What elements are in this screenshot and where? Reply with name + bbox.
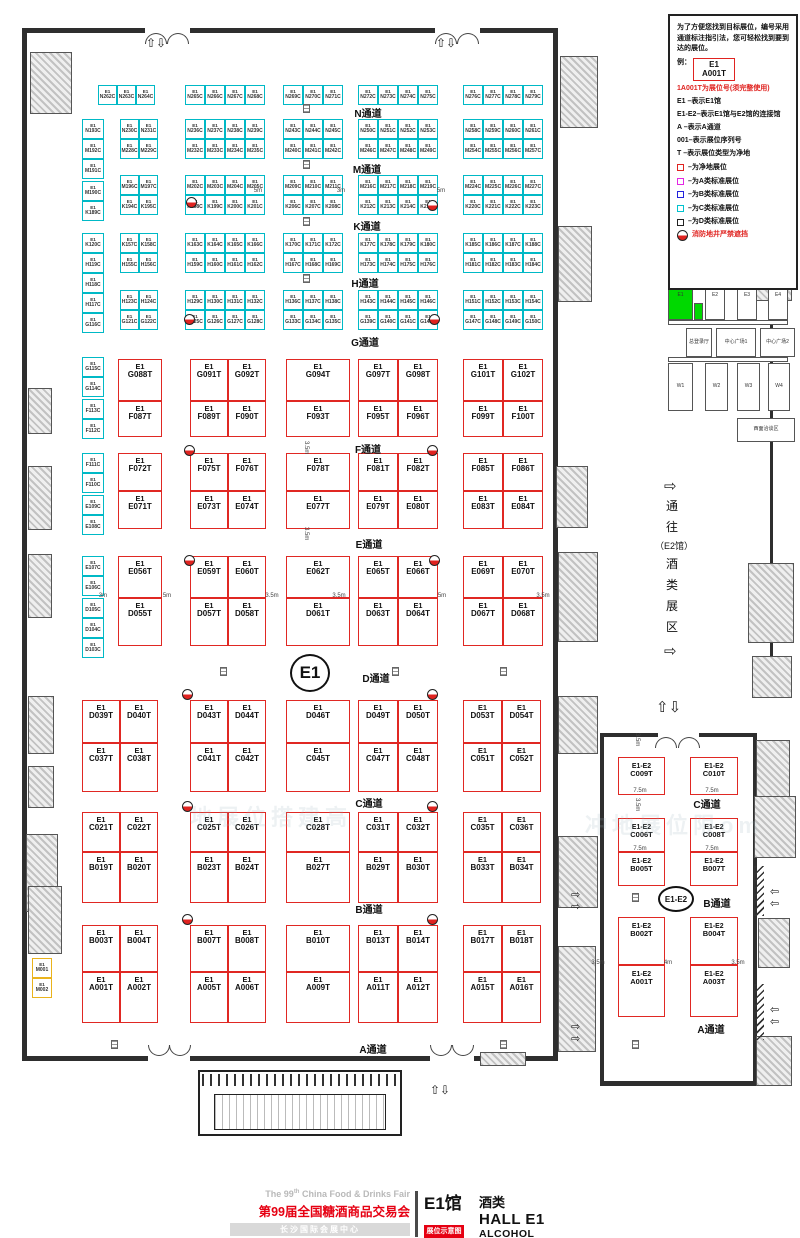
booth-M226C[interactable]: E1M226C [503, 175, 523, 195]
booth-D039T[interactable]: E1D039T [82, 700, 120, 743]
booth-H174C[interactable]: E1H174C [378, 253, 398, 273]
escalator-icon [303, 104, 310, 113]
booth-K120C[interactable]: E1K120C [82, 233, 104, 253]
booth-N278C[interactable]: E1N278C [503, 85, 523, 105]
booth-A012T[interactable]: E1A012T [398, 972, 438, 1023]
booth-B008T[interactable]: E1B008T [228, 925, 266, 972]
booth-M203C[interactable]: E1M203C [205, 175, 225, 195]
booth-H168C[interactable]: E1H168C [303, 253, 323, 273]
booth-M241C[interactable]: E1M241C [303, 139, 323, 159]
booth-K220C[interactable]: E1K220C [463, 195, 483, 215]
booth-N261C[interactable]: E1N261C [523, 119, 543, 139]
booth-E108C[interactable]: E1E108C [82, 515, 104, 535]
booth-N231C[interactable]: E1N231C [139, 119, 158, 139]
booth-G094T[interactable]: E1G094T [286, 359, 350, 401]
booth-code: H129C [187, 300, 203, 306]
booth-H156C[interactable]: E1H156C [139, 253, 158, 273]
booth-B014T[interactable]: E1B014T [398, 925, 438, 972]
booth-A016T[interactable]: E1A016T [502, 972, 541, 1023]
booth-D103C[interactable]: E1D103C [82, 638, 104, 658]
booth-F072T[interactable]: E1F072T [118, 453, 162, 491]
booth-C045T[interactable]: E1C045T [286, 743, 350, 792]
booth-D061T[interactable]: E1D061T [286, 598, 350, 646]
booth-E074T[interactable]: E1E074T [228, 491, 266, 529]
booth-C022T[interactable]: E1C022T [120, 812, 158, 852]
booth-C035T[interactable]: E1C035T [463, 812, 502, 852]
booth-E073T[interactable]: E1E073T [190, 491, 228, 529]
booth-H145C[interactable]: E1H145C [398, 290, 418, 310]
booth-A005T[interactable]: E1A005T [190, 972, 228, 1023]
booth-C032T[interactable]: E1C032T [398, 812, 438, 852]
booth-G102T[interactable]: E1G102T [503, 359, 543, 401]
booth-H123C[interactable]: E1H123C [120, 290, 139, 310]
booth-G141C[interactable]: E1G141C [398, 310, 418, 330]
booth-D064T[interactable]: E1D064T [398, 598, 438, 646]
dimension-label: 7.5m [705, 788, 718, 794]
booth-N263C[interactable]: E1N263C [117, 85, 136, 105]
booth-M254C[interactable]: E1M254C [463, 139, 483, 159]
booth-H146C[interactable]: E1H146C [418, 290, 438, 310]
booth-A006T[interactable]: E1A006T [228, 972, 266, 1023]
booth-code: N274C [400, 95, 416, 101]
booth-E109C[interactable]: E1E109C [82, 495, 104, 515]
booth-M210C[interactable]: E1M210C [303, 175, 323, 195]
booth-K163C[interactable]: E1K163C [185, 233, 205, 253]
booth-E083T[interactable]: E1E083T [463, 491, 503, 529]
booth-H162C[interactable]: E1H162C [245, 253, 265, 273]
booth-H132C[interactable]: E1H132C [245, 290, 265, 310]
booth-D046T[interactable]: E1D046T [286, 700, 350, 743]
booth-C047T[interactable]: E1C047T [358, 743, 398, 792]
booth-D054T[interactable]: E1D054T [502, 700, 541, 743]
booth-H159C[interactable]: E1H159C [185, 253, 205, 273]
booth-N251C[interactable]: E1N251C [378, 119, 398, 139]
booth-A001T[interactable]: E1A001T [82, 972, 120, 1023]
booth-N270C[interactable]: E1N270C [303, 85, 323, 105]
booth-K157C[interactable]: E1K157C [120, 233, 139, 253]
booth-F087T[interactable]: E1F087T [118, 401, 162, 437]
booth-F086T[interactable]: E1F086T [503, 453, 543, 491]
booth-N267C[interactable]: E1N267C [225, 85, 245, 105]
booth-code: M229C [140, 149, 156, 155]
booth-H182C[interactable]: E1H182C [483, 253, 503, 273]
booth-M224C[interactable]: E1M224C [463, 175, 483, 195]
booth-F085T[interactable]: E1F085T [463, 453, 503, 491]
booth-M246C[interactable]: E1M246C [358, 139, 378, 159]
booth-B024T[interactable]: E1B024T [228, 852, 266, 903]
booth-N230C[interactable]: E1N230C [120, 119, 139, 139]
booth-G140C[interactable]: E1G140C [378, 310, 398, 330]
booth-D044T[interactable]: E1D044T [228, 700, 266, 743]
booth-A002T[interactable]: E1A002T [120, 972, 158, 1023]
booth-K200C[interactable]: E1K200C [225, 195, 245, 215]
booth-K188C[interactable]: E1K188C [523, 233, 543, 253]
booth-M190C[interactable]: E1M190C [82, 181, 104, 201]
booth-K164C[interactable]: E1K164C [205, 233, 225, 253]
booth-H151C[interactable]: E1H151C [463, 290, 483, 310]
booth-M234C[interactable]: E1M234C [225, 139, 245, 159]
booth-G091T[interactable]: E1G091T [190, 359, 228, 401]
booth-H160C[interactable]: E1H160C [205, 253, 225, 273]
booth-H129C[interactable]: E1H129C [185, 290, 205, 310]
booth-D049T[interactable]: E1D049T [358, 700, 398, 743]
booth-M209C[interactable]: E1M209C [283, 175, 303, 195]
booth-H131C[interactable]: E1H131C [225, 290, 245, 310]
booth-G134C[interactable]: E1G134C [303, 310, 323, 330]
booth-B017T[interactable]: E1B017T [463, 925, 502, 972]
booth-C041T[interactable]: E1C041T [190, 743, 228, 792]
booth-N239C[interactable]: E1N239C [245, 119, 265, 139]
booth-G101T[interactable]: E1G101T [463, 359, 503, 401]
booth-D105C[interactable]: E1D105C [82, 598, 104, 618]
booth-K172C[interactable]: E1K172C [323, 233, 343, 253]
booth-H117C[interactable]: E1H117C [82, 293, 104, 313]
booth-K194C[interactable]: E1K194C [120, 195, 139, 215]
booth-E077T[interactable]: E1E077T [286, 491, 350, 529]
booth-B003T[interactable]: E1B003T [82, 925, 120, 972]
booth-F075T[interactable]: E1F075T [190, 453, 228, 491]
booth-D068T[interactable]: E1D068T [503, 598, 543, 646]
booth-H119C[interactable]: E1H119C [82, 253, 104, 273]
booth-E079T[interactable]: E1E079T [358, 491, 398, 529]
booth-M240C[interactable]: E1M240C [283, 139, 303, 159]
booth-A001T[interactable]: E1-E2A001T [618, 965, 665, 1017]
booth-K222C[interactable]: E1K222C [503, 195, 523, 215]
booth-E060T[interactable]: E1E060T [228, 556, 266, 598]
booth-K213C[interactable]: E1K213C [378, 195, 398, 215]
booth-B004T[interactable]: E1-E2B004T [690, 917, 738, 965]
booth-B007T[interactable]: E1-E2B007T [690, 852, 738, 886]
booth-M225C[interactable]: E1M225C [483, 175, 503, 195]
booth-M217C[interactable]: E1M217C [378, 175, 398, 195]
booth-H137C[interactable]: E1H137C [303, 290, 323, 310]
booth-N268C[interactable]: E1N268C [245, 85, 265, 105]
booth-K221C[interactable]: E1K221C [483, 195, 503, 215]
booth-H161C[interactable]: E1H161C [225, 253, 245, 273]
booth-N279C[interactable]: E1N279C [523, 85, 543, 105]
booth-K206C[interactable]: E1K206C [283, 195, 303, 215]
booth-A009T[interactable]: E1A009T [286, 972, 350, 1023]
facility-block [28, 466, 52, 530]
booth-N269C[interactable]: E1N269C [283, 85, 303, 105]
booth-K178C[interactable]: E1K178C [378, 233, 398, 253]
booth-G092T[interactable]: E1G092T [228, 359, 266, 401]
booth-N245C[interactable]: E1N245C [323, 119, 343, 139]
booth-M235C[interactable]: E1M235C [245, 139, 265, 159]
booth-B018T[interactable]: E1B018T [502, 925, 541, 972]
booth-M229C[interactable]: E1M229C [139, 139, 158, 159]
booth-F111C[interactable]: E1F111C [82, 453, 104, 473]
booth-D050T[interactable]: E1D050T [398, 700, 438, 743]
booth-N276C[interactable]: E1N276C [463, 85, 483, 105]
booth-D043T[interactable]: E1D043T [190, 700, 228, 743]
booth-E069T[interactable]: E1E069T [463, 556, 503, 598]
booth-E059T[interactable]: E1E059T [190, 556, 228, 598]
booth-H181C[interactable]: E1H181C [463, 253, 483, 273]
booth-M196C[interactable]: E1M196C [120, 175, 139, 195]
booth-code: K163C [187, 243, 203, 249]
booth-code: D067T [471, 610, 495, 619]
booth-M202C[interactable]: E1M202C [185, 175, 205, 195]
booth-D055T[interactable]: E1D055T [118, 598, 162, 646]
booth-F113C[interactable]: E1F113C [82, 399, 104, 419]
booth-N275C[interactable]: E1N275C [418, 85, 438, 105]
booth-D067T[interactable]: E1D067T [463, 598, 503, 646]
booth-G147C[interactable]: E1G147C [463, 310, 483, 330]
booth-F099T[interactable]: E1F099T [463, 401, 503, 437]
booth-C037T[interactable]: E1C037T [82, 743, 120, 792]
booth-E070T[interactable]: E1E070T [503, 556, 543, 598]
booth-C021T[interactable]: E1C021T [82, 812, 120, 852]
booth-G098T[interactable]: E1G098T [398, 359, 438, 401]
footer: The 99th China Food & Drinks Fair 第99届全国… [0, 1183, 800, 1238]
wall [600, 1081, 757, 1086]
booth-B005T[interactable]: E1-E2B005T [618, 852, 665, 886]
booth-F110C[interactable]: E1F110C [82, 473, 104, 493]
booth-M216C[interactable]: E1M216C [358, 175, 378, 195]
booth-G115C[interactable]: E1G115C [82, 357, 104, 377]
booth-H155C[interactable]: E1H155C [120, 253, 139, 273]
booth-H154C[interactable]: E1H154C [523, 290, 543, 310]
booth-M249C[interactable]: E1M249C [418, 139, 438, 159]
booth-N266C[interactable]: E1N266C [205, 85, 225, 105]
booth-H143C[interactable]: E1H143C [358, 290, 378, 310]
booth-M257C[interactable]: E1M257C [523, 139, 543, 159]
booth-code: F085T [471, 465, 494, 474]
booth-M255C[interactable]: E1M255C [483, 139, 503, 159]
booth-H183C[interactable]: E1H183C [503, 253, 523, 273]
booth-K179C[interactable]: E1K179C [398, 233, 418, 253]
booth-M191C[interactable]: E1M191C [82, 159, 104, 179]
booth-K208C[interactable]: E1K208C [323, 195, 343, 215]
booth-G116C[interactable]: E1G116C [82, 313, 104, 333]
booth-N243C[interactable]: E1N243C [283, 119, 303, 139]
booth-N271C[interactable]: E1N271C [323, 85, 343, 105]
booth-K186C[interactable]: E1K186C [483, 233, 503, 253]
booth-B013T[interactable]: E1B013T [358, 925, 398, 972]
booth-K177C[interactable]: E1K177C [358, 233, 378, 253]
booth-K189C[interactable]: E1K189C [82, 201, 104, 221]
booth-code: B024T [235, 864, 259, 873]
booth-N250C[interactable]: E1N250C [358, 119, 378, 139]
booth-H169C[interactable]: E1H169C [323, 253, 343, 273]
booth-G088T[interactable]: E1G088T [118, 359, 162, 401]
booth-C038T[interactable]: E1C038T [120, 743, 158, 792]
booth-G121C[interactable]: E1G121C [120, 310, 139, 330]
booth-N193C[interactable]: E1N193C [82, 119, 104, 139]
legend-key-label: –为D类标准展位 [688, 215, 739, 229]
booth-B034T[interactable]: E1B034T [502, 852, 541, 903]
booth-D063T[interactable]: E1D063T [358, 598, 398, 646]
booth-A015T[interactable]: E1A015T [463, 972, 502, 1023]
booth-B004T[interactable]: E1B004T [120, 925, 158, 972]
booth-K214C[interactable]: E1K214C [398, 195, 418, 215]
booth-N236C[interactable]: E1N236C [185, 119, 205, 139]
booth-code: E108C [85, 525, 100, 531]
booth-H144C[interactable]: E1H144C [378, 290, 398, 310]
booth-K158C[interactable]: E1K158C [139, 233, 158, 253]
facility-block [28, 388, 52, 434]
booth-N273C[interactable]: E1N273C [378, 85, 398, 105]
booth-B023T[interactable]: E1B023T [190, 852, 228, 903]
booth-code: M224C [465, 185, 481, 191]
booth-M192C[interactable]: E1M192C [82, 139, 104, 159]
booth-G149C[interactable]: E1G149C [503, 310, 523, 330]
booth-E071T[interactable]: E1E071T [118, 491, 162, 529]
booth-G139C[interactable]: E1G139C [358, 310, 378, 330]
booth-B010T[interactable]: E1B010T [286, 925, 350, 972]
booth-N262C[interactable]: E1N262C [98, 85, 117, 105]
booth-B030T[interactable]: E1B030T [398, 852, 438, 903]
booth-C051T[interactable]: E1C051T [463, 743, 502, 792]
booth-D053T[interactable]: E1D053T [463, 700, 502, 743]
booth-G126C[interactable]: E1G126C [205, 310, 225, 330]
booth-F112C[interactable]: E1F112C [82, 419, 104, 439]
booth-M232C[interactable]: E1M232C [185, 139, 205, 159]
booth-C052T[interactable]: E1C052T [502, 743, 541, 792]
booth-C048T[interactable]: E1C048T [398, 743, 438, 792]
booth-C031T[interactable]: E1C031T [358, 812, 398, 852]
booth-F095T[interactable]: E1F095T [358, 401, 398, 437]
booth-N258C[interactable]: E1N258C [463, 119, 483, 139]
booth-N244C[interactable]: E1N244C [303, 119, 323, 139]
booth-E084T[interactable]: E1E084T [503, 491, 543, 529]
booth-E107C[interactable]: E1E107C [82, 556, 104, 576]
booth-N237C[interactable]: E1N237C [205, 119, 225, 139]
booth-N264C[interactable]: E1N264C [136, 85, 155, 105]
booth-G135C[interactable]: E1G135C [323, 310, 343, 330]
booth-N238C[interactable]: E1N238C [225, 119, 245, 139]
booth-H124C[interactable]: E1H124C [139, 290, 158, 310]
booth-H175C[interactable]: E1H175C [398, 253, 418, 273]
booth-A011T[interactable]: E1A011T [358, 972, 398, 1023]
booth-B033T[interactable]: E1B033T [463, 852, 502, 903]
booth-K165C[interactable]: E1K165C [225, 233, 245, 253]
booth-code: F081T [366, 465, 389, 474]
booth-G127C[interactable]: E1G127C [225, 310, 245, 330]
booth-H153C[interactable]: E1H153C [503, 290, 523, 310]
booth-N260C[interactable]: E1N260C [503, 119, 523, 139]
booth-C042T[interactable]: E1C042T [228, 743, 266, 792]
facility-block [752, 656, 792, 698]
booth-M233C[interactable]: E1M233C [205, 139, 225, 159]
booth-K223C[interactable]: E1K223C [523, 195, 543, 215]
booth-B029T[interactable]: E1B029T [358, 852, 398, 903]
booth-A003T[interactable]: E1-E2A003T [690, 965, 738, 1017]
booth-M001[interactable]: E1M001 [32, 958, 52, 978]
booth-B002T[interactable]: E1-E2B002T [618, 917, 665, 965]
booth-M228C[interactable]: E1M228C [120, 139, 139, 159]
booth-G150C[interactable]: E1G150C [523, 310, 543, 330]
booth-F082T[interactable]: E1F082T [398, 453, 438, 491]
booth-K207C[interactable]: E1K207C [303, 195, 323, 215]
booth-H173C[interactable]: E1H173C [358, 253, 378, 273]
booth-M218C[interactable]: E1M218C [398, 175, 418, 195]
booth-K180C[interactable]: E1K180C [418, 233, 438, 253]
booth-code: N275C [420, 95, 436, 101]
booth-M248C[interactable]: E1M248C [398, 139, 418, 159]
booth-M002[interactable]: E1M002 [32, 978, 52, 998]
booth-D057T[interactable]: E1D057T [190, 598, 228, 646]
booth-M227C[interactable]: E1M227C [523, 175, 543, 195]
booth-G114C[interactable]: E1G114C [82, 377, 104, 397]
booth-E065T[interactable]: E1E065T [358, 556, 398, 598]
booth-K170C[interactable]: E1K170C [283, 233, 303, 253]
booth-F100T[interactable]: E1F100T [503, 401, 543, 437]
booth-E056T[interactable]: E1E056T [118, 556, 162, 598]
booth-E062T[interactable]: E1E062T [286, 556, 350, 598]
booth-K187C[interactable]: E1K187C [503, 233, 523, 253]
booth-E080T[interactable]: E1E080T [398, 491, 438, 529]
booth-K171C[interactable]: E1K171C [303, 233, 323, 253]
booth-H118C[interactable]: E1H118C [82, 273, 104, 293]
facility-block [756, 740, 790, 798]
booth-G097T[interactable]: E1G097T [358, 359, 398, 401]
booth-G133C[interactable]: E1G133C [283, 310, 303, 330]
booth-N253C[interactable]: E1N253C [418, 119, 438, 139]
booth-K195C[interactable]: E1K195C [139, 195, 158, 215]
booth-K199C[interactable]: E1K199C [205, 195, 225, 215]
booth-F089T[interactable]: E1F089T [190, 401, 228, 437]
wall [190, 28, 435, 33]
booth-B020T[interactable]: E1B020T [120, 852, 158, 903]
booth-F081T[interactable]: E1F081T [358, 453, 398, 491]
fire-hydrant-icon [184, 555, 195, 566]
booth-H184C[interactable]: E1H184C [523, 253, 543, 273]
booth-G128C[interactable]: E1G128C [245, 310, 265, 330]
booth-F093T[interactable]: E1F093T [286, 401, 350, 437]
sawtooth-wall [754, 866, 764, 916]
booth-N252C[interactable]: E1N252C [398, 119, 418, 139]
booth-G148C[interactable]: E1G148C [483, 310, 503, 330]
booth-H167C[interactable]: E1H167C [283, 253, 303, 273]
booth-M256C[interactable]: E1M256C [503, 139, 523, 159]
booth-H136C[interactable]: E1H136C [283, 290, 303, 310]
booth-C036T[interactable]: E1C036T [502, 812, 541, 852]
booth-M219C[interactable]: E1M219C [418, 175, 438, 195]
booth-N259C[interactable]: E1N259C [483, 119, 503, 139]
booth-N277C[interactable]: E1N277C [483, 85, 503, 105]
booth-M204C[interactable]: E1M204C [225, 175, 245, 195]
booth-F090T[interactable]: E1F090T [228, 401, 266, 437]
booth-K185C[interactable]: E1K185C [463, 233, 483, 253]
booth-M242C[interactable]: E1M242C [323, 139, 343, 159]
booth-M197C[interactable]: E1M197C [139, 175, 158, 195]
booth-D040T[interactable]: E1D040T [120, 700, 158, 743]
booth-K166C[interactable]: E1K166C [245, 233, 265, 253]
booth-K212C[interactable]: E1K212C [358, 195, 378, 215]
booth-B027T[interactable]: E1B027T [286, 852, 350, 903]
booth-code: B004T [127, 937, 151, 946]
booth-K201C[interactable]: E1K201C [245, 195, 265, 215]
booth-H130C[interactable]: E1H130C [205, 290, 225, 310]
booth-B019T[interactable]: E1B019T [82, 852, 120, 903]
booth-B007T[interactable]: E1B007T [190, 925, 228, 972]
booth-N265C[interactable]: E1N265C [185, 85, 205, 105]
booth-H152C[interactable]: E1H152C [483, 290, 503, 310]
booth-H138C[interactable]: E1H138C [323, 290, 343, 310]
booth-F078T[interactable]: E1F078T [286, 453, 350, 491]
booth-D058T[interactable]: E1D058T [228, 598, 266, 646]
booth-N272C[interactable]: E1N272C [358, 85, 378, 105]
booth-H176C[interactable]: E1H176C [418, 253, 438, 273]
booth-F076T[interactable]: E1F076T [228, 453, 266, 491]
booth-M247C[interactable]: E1M247C [378, 139, 398, 159]
booth-D104C[interactable]: E1D104C [82, 618, 104, 638]
booth-G122C[interactable]: E1G122C [139, 310, 158, 330]
booth-N274C[interactable]: E1N274C [398, 85, 418, 105]
booth-F096T[interactable]: E1F096T [398, 401, 438, 437]
